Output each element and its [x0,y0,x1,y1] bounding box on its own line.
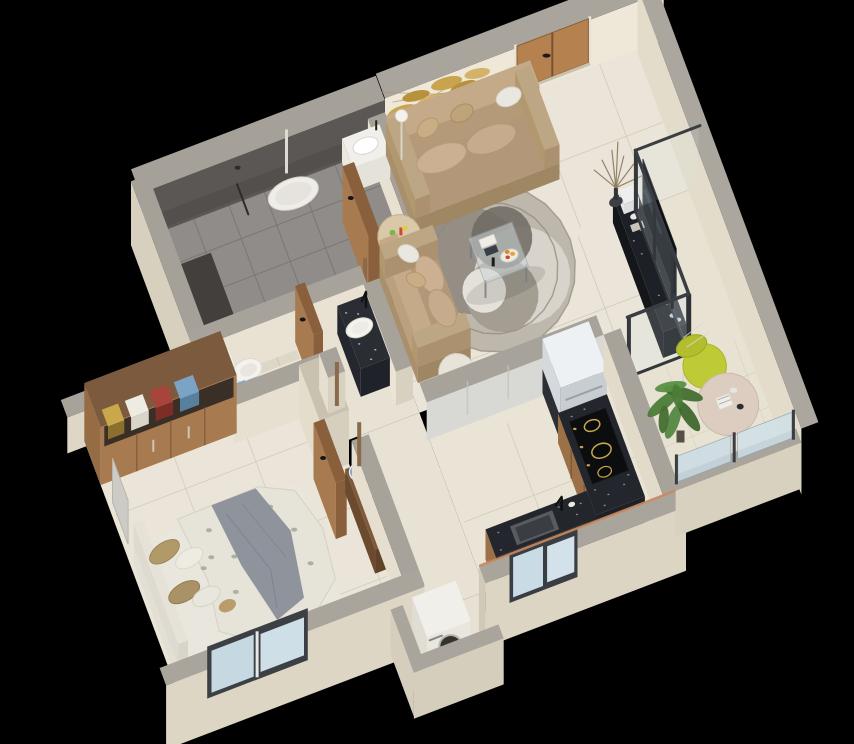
vanity-speckles [374,349,376,351]
bedroom-door-frame [357,422,361,466]
counter-speckles [607,494,609,496]
vanity-speckles [345,312,347,314]
branch-vase-neck [614,188,618,200]
duvet-floral-pattern [291,528,297,532]
counter-speckles [623,484,625,486]
palm-pot [677,431,685,443]
duvet-floral-pattern [206,528,212,532]
wc-door-handle [300,318,306,322]
jug-white [730,387,738,393]
counter-speckles [594,489,596,491]
counter-speckles [497,532,499,534]
hand-shower-head [235,166,241,170]
vanity-wall [396,365,413,406]
counter-speckles [627,474,629,476]
vanity-speckles [357,313,359,315]
counter-speckles [580,503,582,505]
counter-speckles [558,506,560,508]
vanity-speckles [358,343,360,345]
fruit-orange [510,252,515,256]
kitchen-wall-tile-seam [508,365,510,399]
wardrobe-door-seam [136,433,138,471]
bath-basin-faucet [375,120,377,130]
counter-speckles [576,514,578,516]
counter-speckles [500,549,502,551]
bedroom-door-handle [320,456,326,460]
railing-post [792,410,795,440]
duvet-floral-pattern [201,566,207,570]
hob-knobs [573,428,577,430]
bedroom-door-frame [335,362,339,406]
bathroom-door-handle [348,196,354,200]
floor-lamp-globe [396,110,408,122]
tv-console-speckles [658,295,660,297]
side-table-item-yellow [402,226,408,230]
coffee-cup-black [737,404,744,410]
wardrobe-door-seam [204,407,206,445]
hob-knobs [580,446,584,448]
shower-pole [285,129,288,173]
counter-speckles [571,416,573,418]
entry-door-split [551,33,553,77]
duvet-floral-pattern [208,555,214,559]
vanity-speckles [370,359,372,361]
hob-knobs [587,464,591,466]
counter-speckles [604,505,606,507]
tv-console-speckles [641,253,643,255]
fruit-red [506,255,510,259]
partition-post [653,201,656,261]
bedroom-window-mullion [256,631,259,677]
scene [0,0,854,744]
wardrobe-handle [188,426,190,438]
wardrobe-handle [152,440,154,452]
partition-post [634,152,638,212]
apartment-3d-floor-plan [0,0,854,744]
railing-post [675,454,678,484]
wardrobe-door-seam [170,420,172,458]
fruit-orange [505,250,510,254]
bedroom-door-open [336,479,347,539]
tv-console-speckles [633,240,635,242]
coffee-table-candle [492,257,495,266]
railing-post [733,432,736,462]
duvet-floral-pattern [233,590,239,594]
counter-speckles [583,408,585,410]
kitchen-wall-tile-seam [467,381,469,415]
duvet-floral-pattern [308,561,314,565]
cabinet-seam [571,449,573,479]
floor-lamp-pole [401,118,403,160]
entry-door-handle [543,54,551,58]
